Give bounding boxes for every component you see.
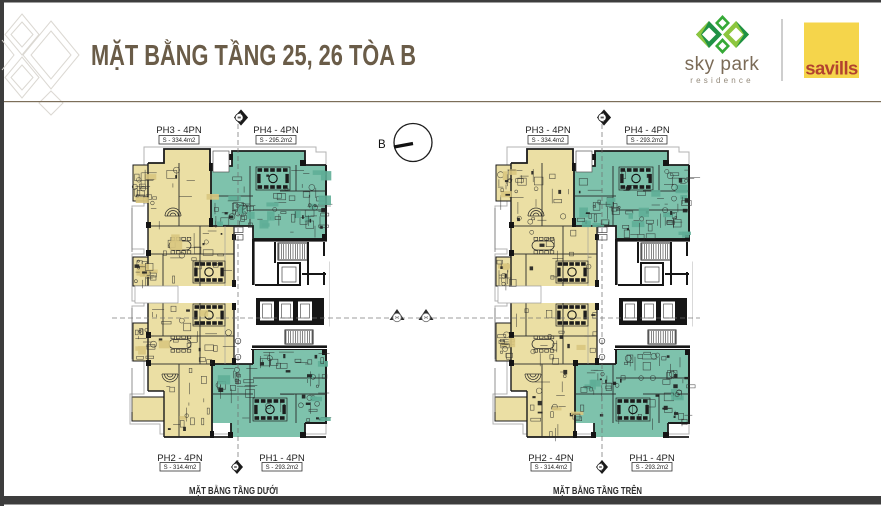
svg-text:MẶT BẰNG TẦNG DƯỚI: MẶT BẰNG TẦNG DƯỚI <box>189 484 278 497</box>
svg-text:S - 314.4m2: S - 314.4m2 <box>535 465 568 471</box>
svg-text:PH4 - 4PN: PH4 - 4PN <box>253 125 299 136</box>
svg-text:PH4 - 4PN: PH4 - 4PN <box>624 125 670 136</box>
svg-text:savills: savills <box>805 58 858 79</box>
svg-text:S - 334.4m2: S - 334.4m2 <box>163 138 196 144</box>
svg-text:S - 314.4m2: S - 314.4m2 <box>164 465 197 471</box>
svg-text:S - 293.2m2: S - 293.2m2 <box>266 465 299 471</box>
svg-text:PH3 - 4PN: PH3 - 4PN <box>525 125 571 136</box>
svg-text:MẶT BẰNG TẦNG TRÊN: MẶT BẰNG TẦNG TRÊN <box>553 484 642 497</box>
svg-text:S - 293.2m2: S - 293.2m2 <box>636 465 669 471</box>
svg-text:S - 293.2m2: S - 293.2m2 <box>631 138 664 144</box>
svg-text:sky park: sky park <box>685 54 760 75</box>
svg-text:B: B <box>378 139 386 151</box>
svg-text:S - 295.2m2: S - 295.2m2 <box>260 138 293 144</box>
svg-text:MẶT BẰNG TẦNG 25, 26 TÒA B: MẶT BẰNG TẦNG 25, 26 TÒA B <box>91 40 416 72</box>
svg-text:PH3 - 4PN: PH3 - 4PN <box>156 125 202 136</box>
svg-text:residence: residence <box>690 76 754 85</box>
svg-text:S - 334.4m2: S - 334.4m2 <box>532 138 565 144</box>
